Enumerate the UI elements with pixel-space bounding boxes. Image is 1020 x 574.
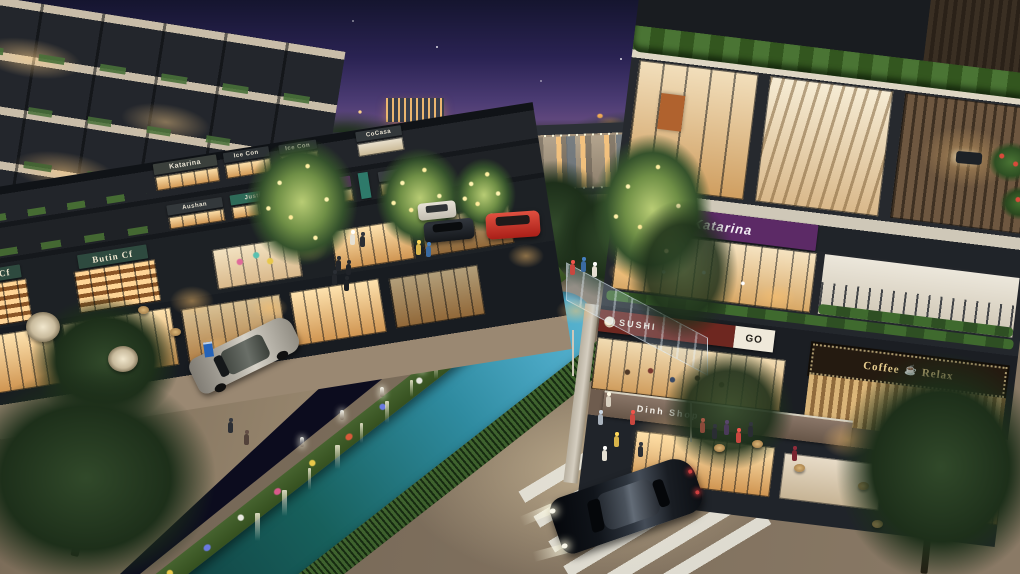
pedestrian — [350, 234, 355, 245]
menu-board — [203, 341, 214, 357]
cafe-storefront — [289, 278, 386, 345]
cafe-patron — [724, 424, 729, 435]
tree — [628, 200, 738, 340]
cafe-patron — [700, 422, 705, 433]
car-glass — [495, 215, 530, 226]
pedestrian — [581, 261, 586, 272]
cafe-table — [714, 444, 725, 452]
lit-tree — [246, 138, 358, 266]
cafe-table — [752, 440, 763, 448]
pedestrian — [336, 260, 341, 271]
pedestrian — [346, 264, 351, 275]
water-reflection — [335, 445, 340, 469]
pedestrian — [606, 396, 611, 407]
pedestrian — [344, 280, 349, 291]
cafe-patron — [712, 428, 717, 439]
star — [436, 46, 438, 48]
gallery-artwork — [657, 93, 685, 132]
water-reflection — [360, 423, 363, 443]
fountain-light — [380, 387, 384, 397]
water-reflection — [385, 401, 389, 423]
water-reflection — [255, 513, 260, 541]
star — [352, 20, 354, 22]
cafe-table — [170, 328, 181, 336]
pedestrian — [598, 414, 603, 425]
car-glass — [432, 222, 463, 233]
pedestrian — [630, 414, 635, 425]
street-lamp-glow — [508, 244, 544, 268]
pedestrian — [602, 450, 607, 461]
fountain-light — [300, 437, 304, 447]
pedestrian — [638, 446, 643, 457]
cafe-umbrella — [108, 346, 138, 372]
street-lamp-glow — [170, 286, 214, 316]
pedestrian — [360, 236, 365, 247]
balcony-plants — [0, 191, 147, 229]
stair-storefront — [755, 76, 893, 216]
water-reflection — [282, 490, 287, 516]
distant-car — [956, 151, 983, 165]
cafe-patron — [792, 450, 797, 461]
street-lamp-glow — [756, 284, 796, 310]
cafe-umbrella — [26, 312, 60, 342]
street-lamp-glow — [556, 298, 596, 324]
pedestrian — [570, 264, 575, 275]
pedestrian — [614, 436, 619, 447]
cafe-storefront — [388, 265, 485, 328]
fountain-light — [340, 410, 344, 420]
star — [540, 80, 542, 82]
cafe-table — [138, 306, 149, 314]
cafe-patron — [748, 426, 753, 437]
pedestrian — [228, 422, 233, 433]
pedestrian — [592, 266, 597, 277]
pedestrian — [332, 274, 337, 285]
star — [620, 58, 622, 60]
water-reflection — [308, 468, 311, 490]
cafe-patron — [736, 432, 741, 443]
tree — [664, 350, 794, 470]
vertical-banner — [358, 172, 372, 199]
pedestrian — [426, 246, 431, 257]
canopy-post — [572, 330, 574, 376]
pedestrian — [416, 244, 421, 255]
red-suv — [485, 210, 541, 240]
water-reflection — [410, 380, 413, 397]
dusk-waterfront-retail-scene: Katarina Ice Con Ice Con CoCasa Aushan J… — [0, 0, 1020, 574]
car-glass — [425, 204, 448, 213]
pedestrian — [244, 434, 249, 445]
cafe-table — [794, 464, 805, 472]
go-label: GO — [733, 326, 775, 353]
